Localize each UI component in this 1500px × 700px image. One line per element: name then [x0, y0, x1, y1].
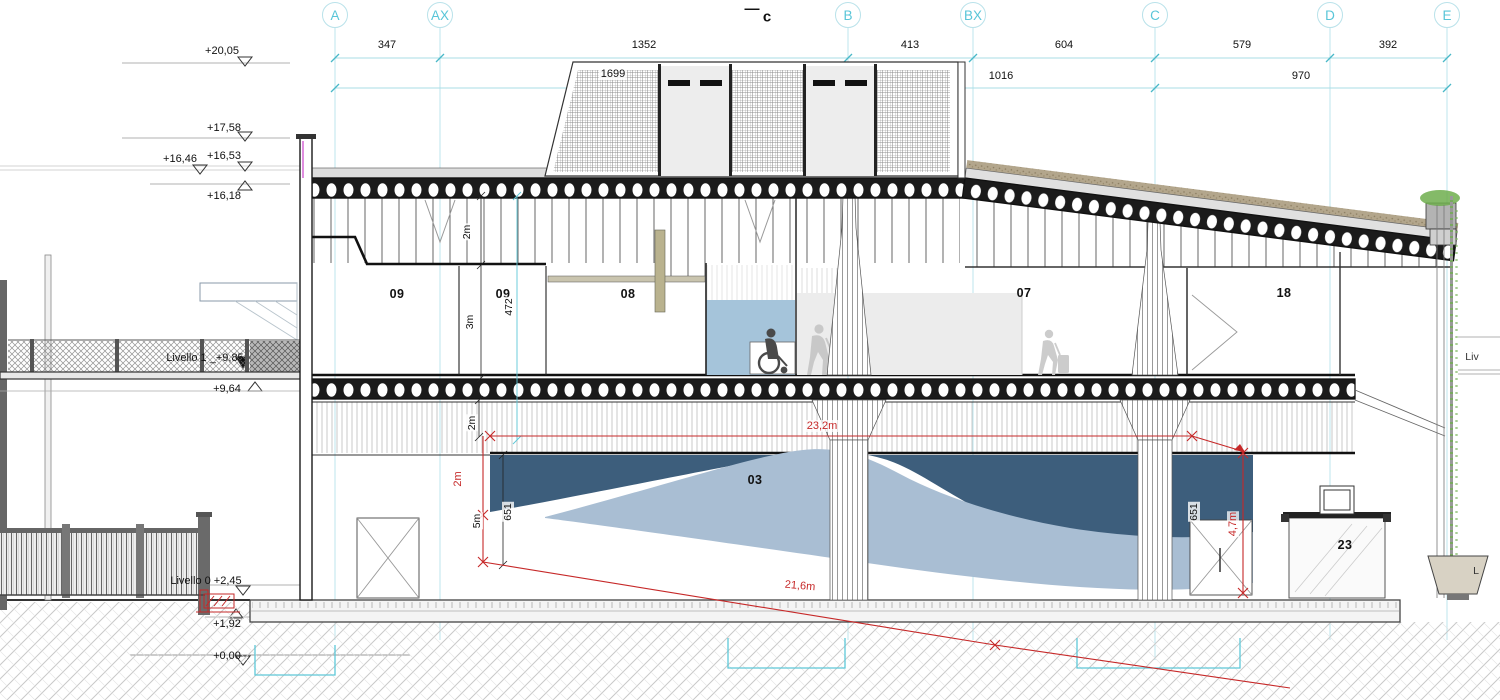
rooms-label: 18	[1277, 286, 1292, 300]
rooms-label: 09	[390, 287, 405, 301]
section-label: —	[745, 1, 760, 18]
side-label: L	[1473, 565, 1479, 577]
building-section-drawing: AAXBBXCDE347135241360457939216991016970—…	[0, 0, 1500, 700]
dims-black-label: 3m	[464, 314, 476, 331]
door-swing-18	[1192, 295, 1237, 370]
side-label: Liv	[1465, 351, 1478, 363]
row1-label: 347	[376, 39, 398, 51]
elevations-label: +16,18	[207, 190, 241, 202]
elevations-label: +1,92	[213, 618, 241, 630]
floor-slab-band	[305, 379, 1355, 399]
grid-bubble-d: D	[1317, 2, 1343, 28]
dims-red-label: 2m	[452, 470, 464, 487]
dims-black-label: 651	[1188, 502, 1200, 522]
section-label: c	[763, 9, 771, 26]
door-panel-left	[357, 518, 419, 598]
elevations-label: +16,53	[207, 150, 241, 162]
elevations-label: Livello 1 _+9,85	[166, 352, 243, 364]
rooms-label: 03	[748, 473, 763, 487]
section-linework	[0, 0, 1500, 700]
row2-label: 1016	[987, 70, 1015, 82]
grid-bubble-a: A	[322, 2, 348, 28]
elevations-label: +0,00	[213, 650, 241, 662]
row1-label: 392	[1377, 39, 1399, 51]
elevations-label: +16,46	[163, 153, 197, 165]
row1-label: 604	[1053, 39, 1075, 51]
elevations-label: Livello 0 +2,45	[170, 575, 241, 587]
dims-black-label: 472	[503, 297, 515, 317]
dims-black-label: 5m	[471, 513, 483, 530]
elevations-label: +17,58	[207, 122, 241, 134]
roof-truss-band	[312, 178, 965, 198]
elevations-label: +9,64	[213, 383, 241, 395]
row1-label: 579	[1231, 39, 1253, 51]
elevations-label: +20,05	[205, 45, 239, 57]
dims-black-label: 2m	[466, 415, 478, 432]
hanger-rods-left	[312, 198, 960, 263]
glass-canopy	[200, 283, 297, 301]
dims-black-label: 651	[502, 502, 514, 522]
kiosk-23	[1281, 486, 1391, 598]
dims-red-label: 4,7m	[1227, 511, 1239, 537]
row1-label: 413	[899, 39, 921, 51]
row2-label: 1699	[599, 68, 627, 80]
rooms-label: 08	[621, 287, 636, 301]
grid-bubble-e: E	[1434, 2, 1460, 28]
grid-bubble-ax: AX	[427, 2, 453, 28]
row1-label: 1352	[630, 39, 658, 51]
grid-bubble-b: B	[835, 2, 861, 28]
rooms-label: 23	[1338, 538, 1353, 552]
rooms-label: 07	[1017, 286, 1032, 300]
roof-vegetation	[1420, 190, 1460, 206]
dims-black-label: 2m	[461, 224, 473, 241]
row2-label: 970	[1290, 70, 1312, 82]
walkway-slab	[0, 372, 302, 379]
left-site	[0, 255, 302, 615]
grid-bubble-bx: BX	[960, 2, 986, 28]
grid-bubble-c: C	[1142, 2, 1168, 28]
traveler-silhouette-2	[1038, 330, 1069, 375]
dims-red-label: 23,2m	[806, 420, 839, 432]
left-wall	[300, 136, 312, 600]
